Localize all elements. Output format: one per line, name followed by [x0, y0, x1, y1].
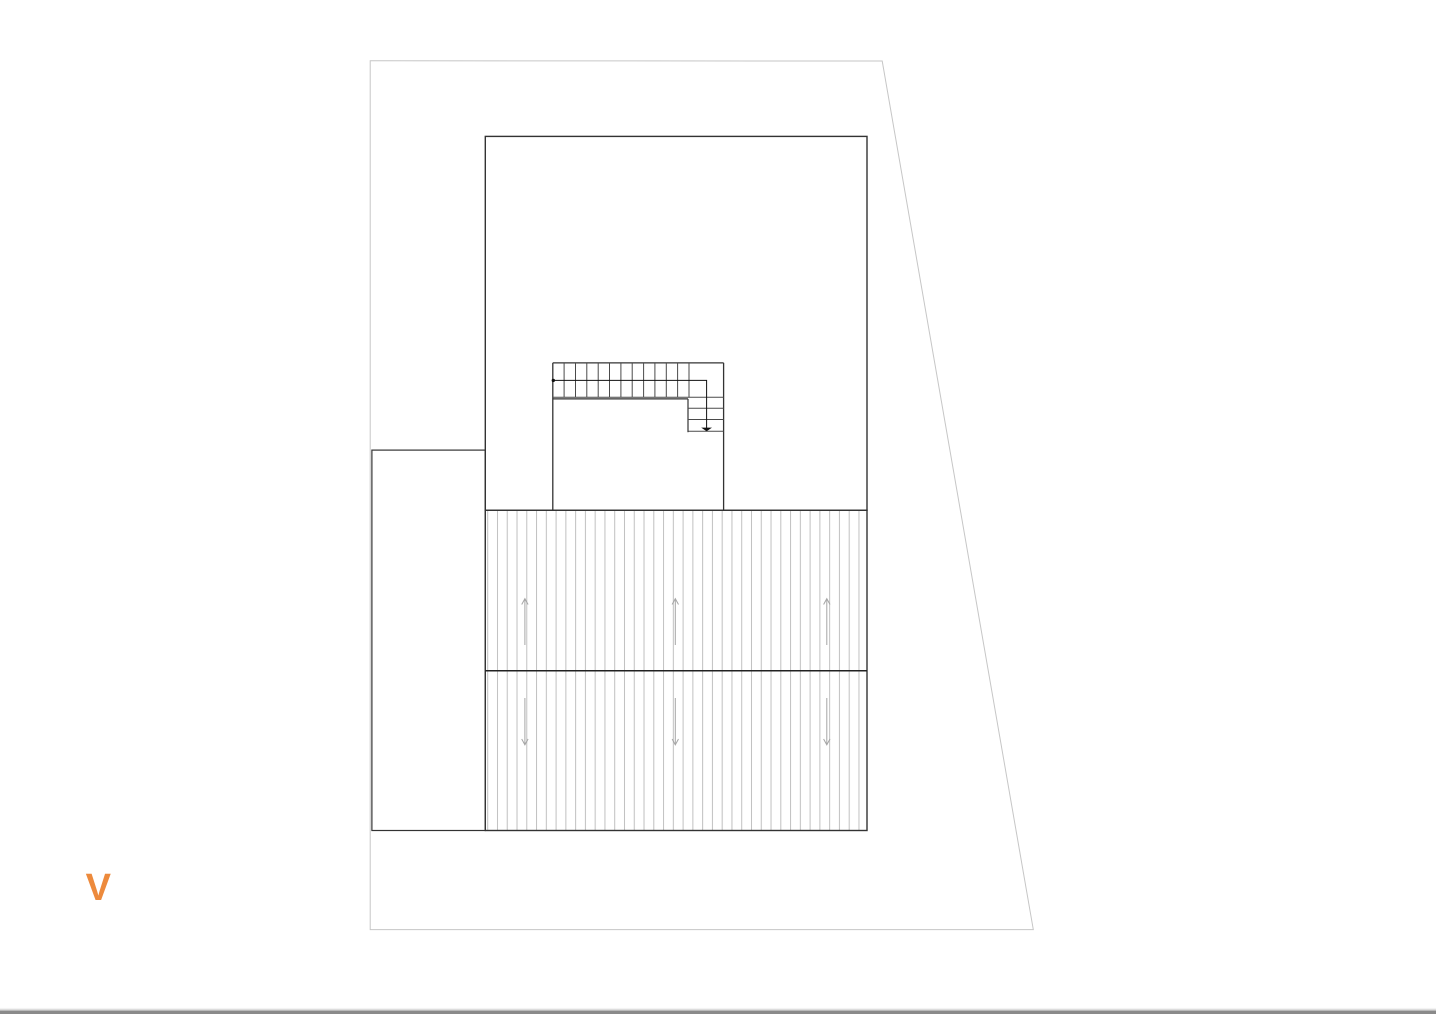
svg-text:V: V: [86, 867, 112, 909]
